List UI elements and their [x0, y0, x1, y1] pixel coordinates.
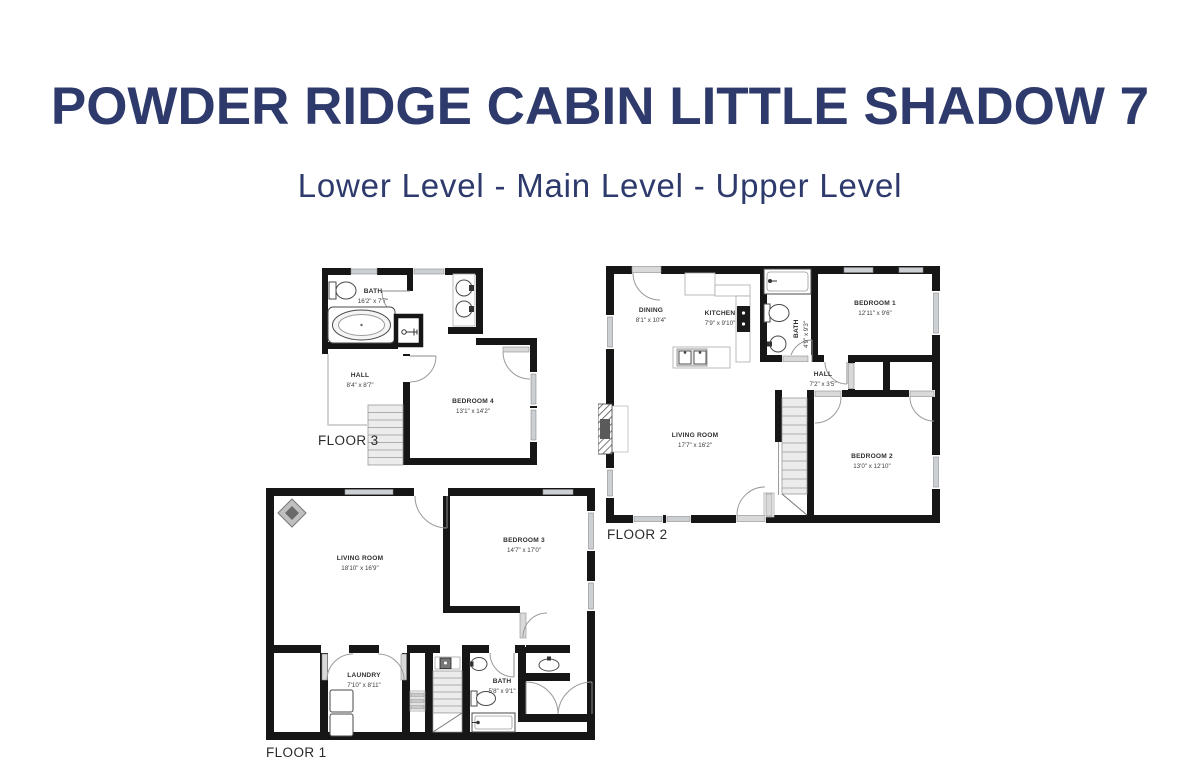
svg-text:HALL: HALL	[814, 371, 832, 378]
bath-door-arc	[489, 645, 515, 677]
bathtub-icon	[472, 713, 515, 732]
bedroom2-door-arc	[814, 390, 842, 423]
svg-text:BEDROOM 2: BEDROOM 2	[851, 453, 893, 460]
bedroom4-door-arc	[503, 347, 530, 379]
svg-text:8'1" x 10'4": 8'1" x 10'4"	[636, 317, 667, 324]
svg-text:7'10" x 8'11": 7'10" x 8'11"	[347, 682, 380, 689]
kitchen-island-sink-icon	[673, 347, 730, 368]
svg-text:13'0" x 12'10": 13'0" x 12'10"	[853, 463, 890, 470]
svg-text:13'1" x 14'2": 13'1" x 14'2"	[456, 408, 490, 415]
stairs	[764, 398, 807, 517]
closet-double-doors	[526, 682, 592, 714]
floor1-plan: LIVING ROOM 18'10" x 16'9" BEDROOM 3 14'…	[260, 483, 605, 762]
svg-text:8'4" x 8'7": 8'4" x 8'7"	[346, 382, 373, 389]
floor1-walls	[266, 488, 595, 740]
vent-chase	[410, 691, 425, 711]
washer-dryer-icon	[330, 690, 353, 736]
svg-text:BEDROOM 4: BEDROOM 4	[452, 398, 494, 405]
entry-door-arc-bottom	[736, 487, 766, 523]
page-title: POWDER RIDGE CABIN LITTLE SHADOW 7	[0, 76, 1200, 137]
floor1-label: FLOOR 1	[266, 745, 327, 760]
toilet-icon	[329, 282, 356, 299]
refrigerator-counter	[685, 273, 715, 295]
entry-door-arc-top	[632, 266, 661, 300]
sink-icon	[767, 336, 786, 352]
svg-text:18'10" x 16'9": 18'10" x 16'9"	[341, 565, 378, 572]
hall-open-boundary	[328, 354, 367, 425]
svg-text:LIVING ROOM: LIVING ROOM	[672, 432, 719, 439]
svg-text:LIVING ROOM: LIVING ROOM	[337, 555, 384, 562]
stove-icon	[737, 306, 750, 332]
floor2-plan: DINING 8'1" x 10'4" KITCHEN 7'9" x 9'10"…	[598, 260, 946, 545]
hall-opening	[782, 355, 809, 362]
laundry-door-arc-right	[378, 645, 407, 680]
floorplan-page: POWDER RIDGE CABIN LITTLE SHADOW 7 Lower…	[0, 0, 1200, 762]
svg-text:17'7" x 16'2": 17'7" x 16'2"	[678, 442, 712, 449]
svg-text:4'9" x 9'3": 4'9" x 9'3"	[803, 321, 810, 348]
svg-text:KITCHEN: KITCHEN	[705, 310, 736, 317]
page-subtitle: Lower Level - Main Level - Upper Level	[0, 167, 1200, 205]
svg-text:HALL: HALL	[351, 372, 369, 379]
svg-text:BEDROOM 3: BEDROOM 3	[503, 537, 545, 544]
svg-text:BEDROOM 1: BEDROOM 1	[854, 300, 896, 307]
floor2-label: FLOOR 2	[607, 527, 668, 542]
bathtub-icon	[328, 307, 395, 343]
closet-sliding-door	[848, 363, 855, 389]
svg-text:LAUNDRY: LAUNDRY	[347, 672, 381, 679]
svg-text:BATH: BATH	[793, 319, 800, 338]
fireplace-icon	[598, 404, 628, 454]
svg-text:DINING: DINING	[639, 307, 663, 314]
double-vanity-icon	[453, 274, 475, 326]
wood-stove-icon	[278, 499, 306, 527]
svg-text:16'2" x 7'7": 16'2" x 7'7"	[358, 298, 389, 305]
patio-door-arc	[414, 488, 448, 528]
shower-icon	[396, 316, 421, 345]
svg-text:14'7" x 17'0": 14'7" x 17'0"	[507, 547, 541, 554]
svg-text:12'11" x 9'6": 12'11" x 9'6"	[858, 310, 891, 317]
bedroom1-door-arc	[824, 355, 848, 384]
sink-icon	[469, 658, 487, 671]
bedroom4-hall-door-arc	[403, 356, 436, 382]
floor3-label: FLOOR 3	[318, 433, 379, 448]
bathtub-icon	[764, 269, 811, 294]
stairs	[433, 671, 462, 732]
svg-text:BATH: BATH	[364, 288, 383, 295]
svg-text:7'9" x 9'10": 7'9" x 9'10"	[705, 320, 736, 327]
svg-text:BATH: BATH	[493, 678, 512, 685]
svg-text:7'2" x 3'5": 7'2" x 3'5"	[809, 381, 836, 388]
svg-text:5'8" x 9'1": 5'8" x 9'1"	[488, 688, 515, 695]
vanity-sink-icon	[539, 657, 559, 672]
floor1-windows	[345, 490, 595, 612]
toilet-icon	[764, 304, 789, 322]
water-heater-icon	[435, 657, 460, 669]
closet-b-door-arc	[909, 390, 935, 421]
bedroom3-door-arc	[520, 613, 547, 638]
